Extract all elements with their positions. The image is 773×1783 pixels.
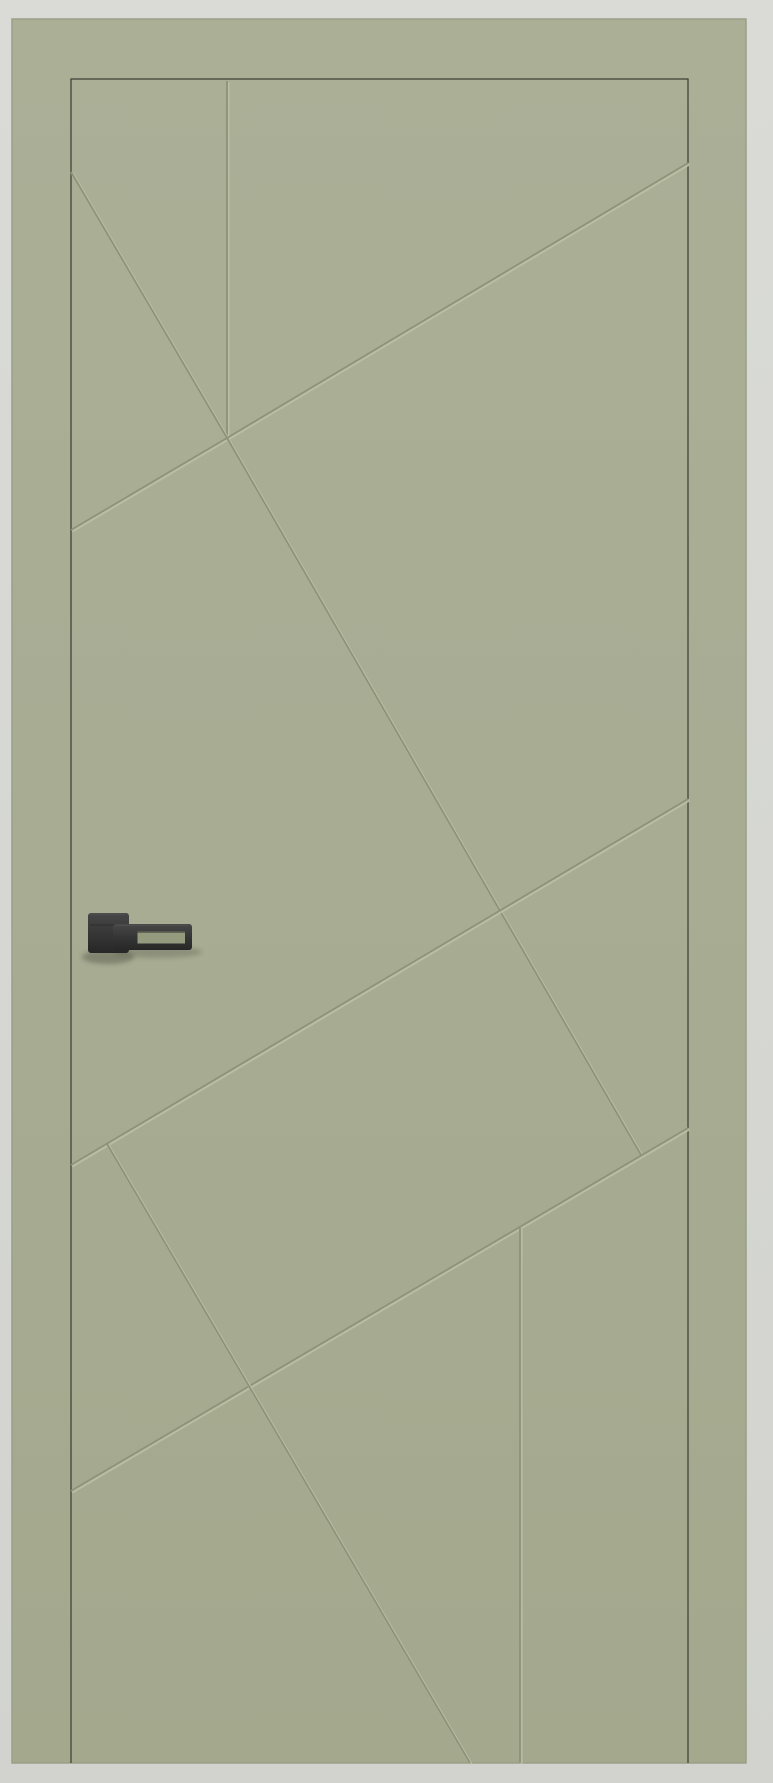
door-slab [12, 19, 746, 1763]
door-product-photo [0, 0, 773, 1783]
door [12, 19, 746, 1764]
handle-lever-cutout [138, 932, 186, 944]
door-image [0, 0, 773, 1783]
